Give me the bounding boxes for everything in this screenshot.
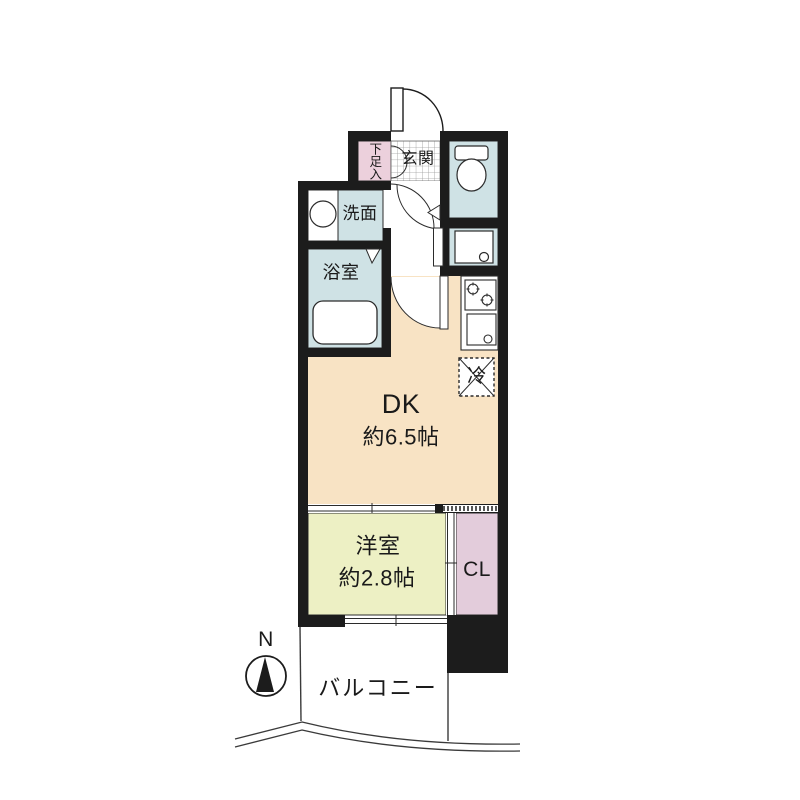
shoe-cabinet-label: 下足入 bbox=[368, 142, 381, 180]
toilet-icon bbox=[455, 146, 488, 191]
bathtub-icon bbox=[313, 301, 377, 344]
bathroom-label: 浴室 bbox=[323, 264, 360, 283]
window bbox=[345, 615, 447, 626]
compass-north-label: N bbox=[258, 629, 274, 651]
sliding-door-closet bbox=[445, 513, 457, 615]
stove-icon bbox=[465, 280, 496, 310]
entrance-door-icon bbox=[391, 88, 443, 131]
refrigerator-label: 冷 bbox=[467, 367, 487, 387]
sliding-door-dk-western bbox=[308, 503, 435, 513]
closet-label: CL bbox=[463, 559, 491, 581]
compass-icon bbox=[246, 656, 286, 696]
kitchen-sink-icon bbox=[467, 314, 496, 345]
laundry-door bbox=[434, 228, 444, 266]
site-boundary-lines bbox=[235, 722, 520, 751]
washroom-label: 洗面 bbox=[343, 205, 378, 223]
dk-label: DK bbox=[382, 390, 421, 418]
closet-open-top bbox=[443, 504, 498, 513]
western-room bbox=[308, 513, 446, 615]
washing-machine-pan-icon bbox=[455, 231, 493, 263]
floor-plan: 下足入 玄関 洗面 浴室 DK 約6.5帖 洋室 約2.8帖 CL バルコニー … bbox=[0, 0, 800, 800]
western-room-area-label: 約2.8帖 bbox=[338, 566, 415, 589]
western-room-label: 洋室 bbox=[355, 534, 400, 557]
entrance-label: 玄関 bbox=[401, 152, 434, 169]
kitchen-counter bbox=[461, 276, 498, 350]
washbasin-icon bbox=[310, 201, 336, 227]
dk-area-label: 約6.5帖 bbox=[362, 425, 439, 448]
balcony-label: バルコニー bbox=[318, 676, 438, 699]
